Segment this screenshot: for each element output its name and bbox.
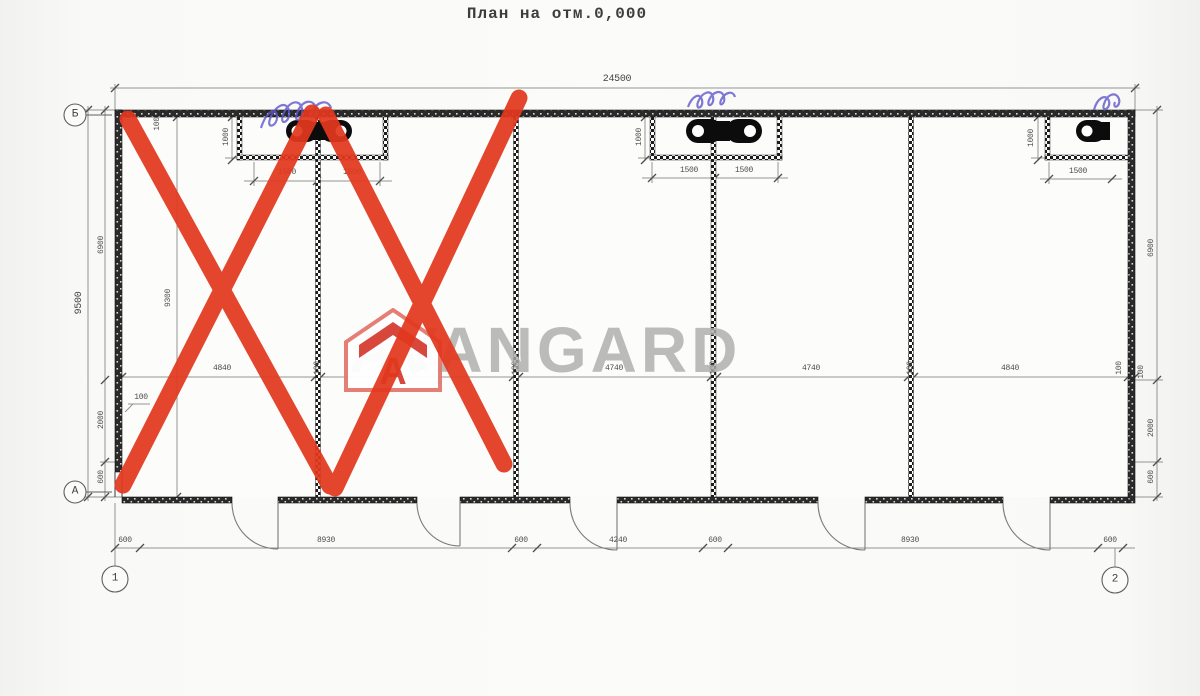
red-x-marks [123, 98, 519, 488]
hand-annotations [0, 0, 1200, 696]
pen-scribbles [261, 92, 1119, 128]
floor-plan-page: План на отм.0,000 24500 9500 6900 2000 6… [0, 0, 1200, 696]
